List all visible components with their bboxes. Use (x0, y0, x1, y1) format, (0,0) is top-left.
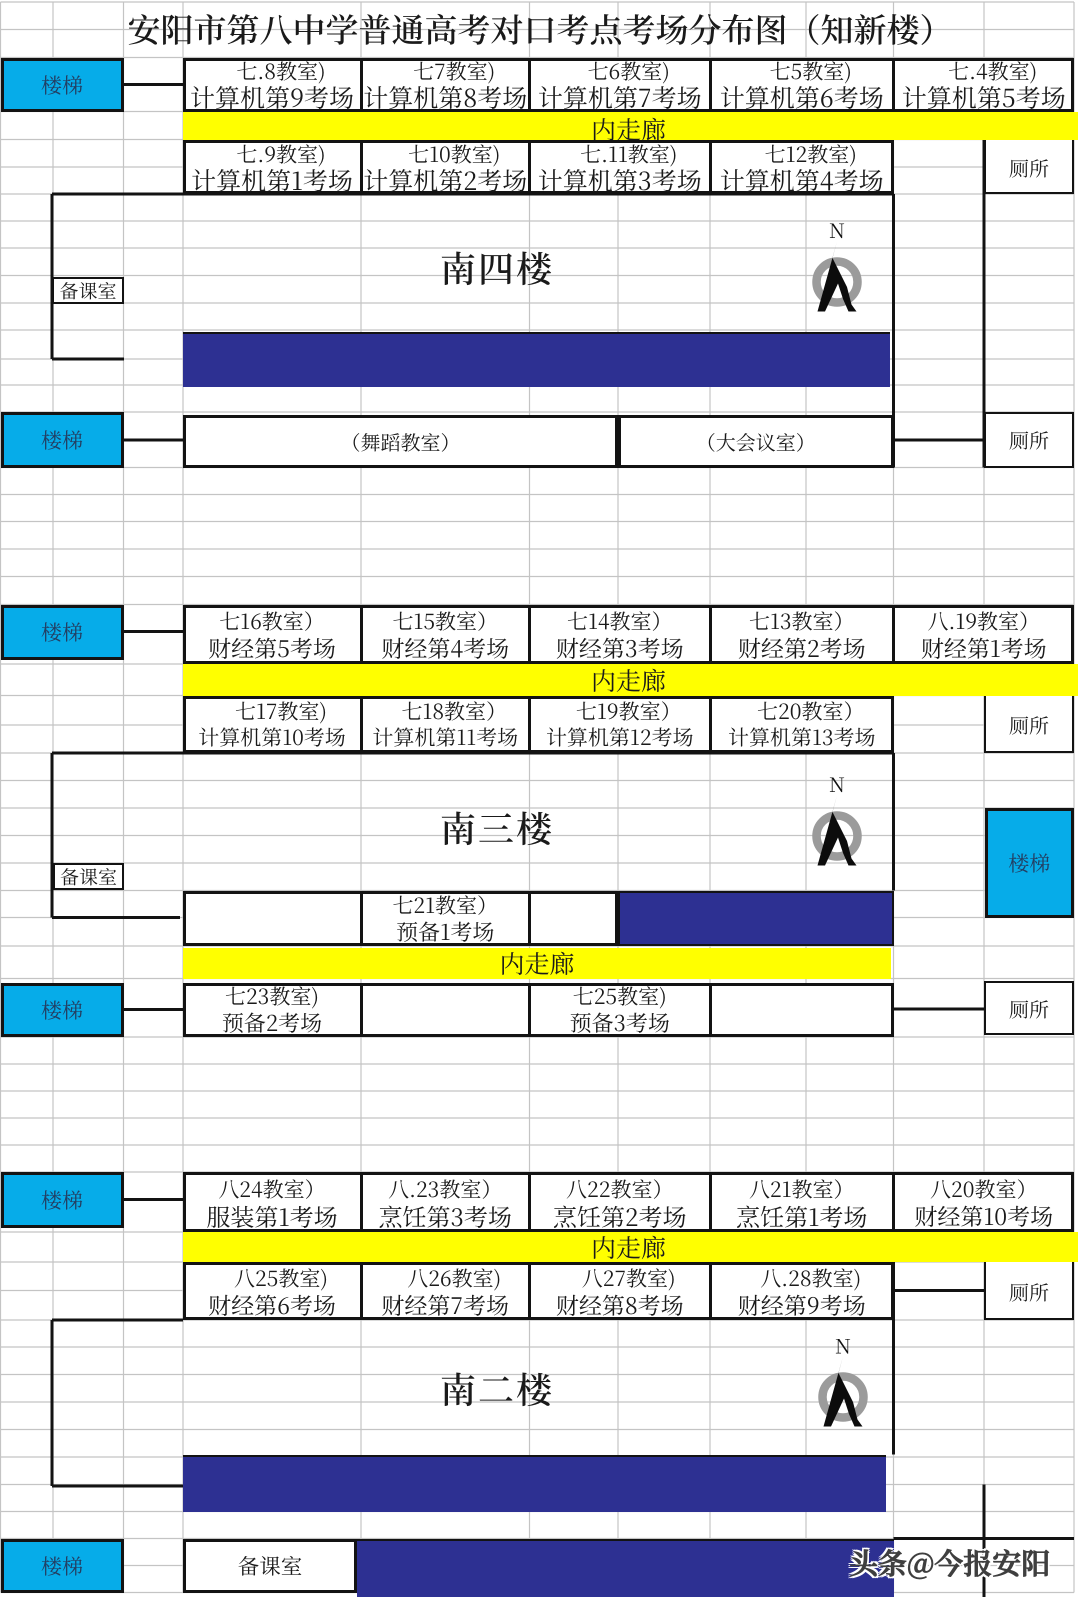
svg-text:N: N (835, 1331, 851, 1360)
svg-text:N: N (829, 215, 845, 244)
svg-text:N: N (829, 769, 845, 798)
